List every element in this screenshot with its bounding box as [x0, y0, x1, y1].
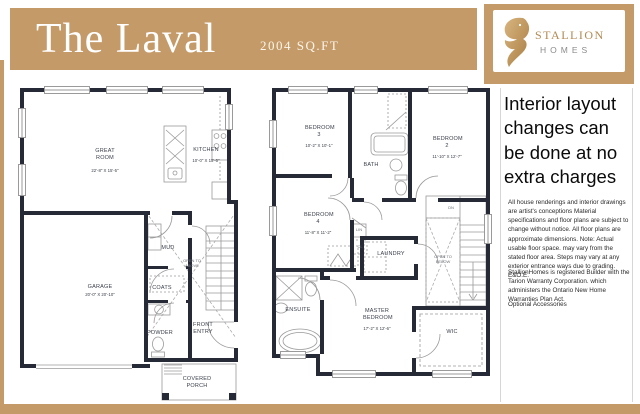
wall: [360, 236, 364, 280]
wall: [188, 211, 192, 225]
window: [432, 370, 472, 378]
room-dims-bedroom2: 11'-10" X 12'-7": [407, 154, 487, 159]
wall: [408, 88, 412, 202]
room-label-front-entry: FRONT ENTRY: [190, 322, 216, 335]
sqft-label: 2004 SQ.FT: [260, 38, 339, 54]
header-bar: The Laval 2004 SQ.FT: [10, 8, 477, 70]
powder-toilet: [153, 337, 164, 351]
room-label-ensuite: ENSUITE: [280, 307, 316, 314]
room-label-bath: BATH: [359, 162, 383, 169]
room-label-powder: POWDER: [142, 330, 178, 337]
wall: [412, 306, 490, 310]
bath-toilet: [396, 181, 407, 195]
room-dims-garage: 20'-0" X 20'-10": [60, 292, 140, 297]
room-label-mud: MUD: [156, 245, 180, 252]
room-dims-kitchen: 10'-0" X 15'-5": [166, 158, 246, 163]
wall: [272, 174, 332, 178]
wall: [320, 300, 324, 354]
wall: [144, 300, 168, 303]
window: [354, 86, 378, 94]
flyer-page: The Laval 2004 SQ.FT STALLION HOMES Inte…: [0, 0, 640, 414]
room-label-bedroom3: BEDROOM 3: [305, 125, 333, 138]
wall: [316, 354, 320, 376]
wall: [412, 358, 416, 372]
window: [288, 86, 328, 94]
window: [269, 120, 277, 148]
room-dims-bedroom3: 10'-2" X 10'-1": [279, 143, 359, 148]
floor1-plan: GREAT ROOM 22'-8" X 15'-5" KITCHEN 10'-0…: [16, 86, 244, 402]
room-label-coats: COATS: [147, 285, 177, 292]
promo-text: Interior layout changes can be done at n…: [504, 92, 632, 190]
label-dn: DN: [443, 205, 459, 210]
window: [162, 86, 204, 94]
wall: [144, 266, 168, 269]
wall: [414, 264, 418, 276]
floor1-fixtures-svg: [16, 86, 244, 402]
island-sink: [168, 168, 182, 179]
frame-bottom: [0, 404, 640, 414]
stallion-horse-icon: [501, 16, 531, 68]
bath-door-arc: [364, 202, 382, 220]
wall: [186, 300, 192, 303]
wall: [132, 364, 150, 368]
room-label-great-room: GREAT ROOM: [90, 148, 120, 161]
window: [106, 86, 148, 94]
room-label-wic: WIC: [436, 329, 468, 336]
room-label-master-bedroom: MASTER BEDROOM: [363, 308, 391, 321]
room-label-cl: CL: [353, 244, 367, 249]
window: [332, 370, 376, 378]
window: [280, 351, 306, 359]
room-label-laundry: LAUNDRY: [371, 251, 411, 258]
bed3-door-arc: [330, 178, 348, 196]
column-divider-left: [500, 88, 501, 402]
wall: [360, 276, 418, 280]
wall: [350, 178, 354, 198]
wall: [360, 236, 418, 240]
wall: [414, 236, 418, 244]
wic-shelving: [420, 314, 482, 366]
room-dims-master-bedroom: 17'-2" X 12'-6": [337, 326, 417, 331]
garage-door: [36, 365, 132, 369]
stallion-homes-logo: STALLION HOMES: [493, 10, 625, 72]
wall: [20, 364, 36, 368]
wall: [348, 88, 352, 178]
room-label-garage: GARAGE: [85, 284, 115, 291]
brand-sub-name: HOMES: [540, 45, 591, 55]
wall: [148, 358, 238, 362]
room-label-bedroom2: BEDROOM 2: [433, 136, 461, 149]
room-label-covered-porch: COVERED PORCH: [179, 376, 215, 389]
master-door-arc: [330, 280, 356, 306]
room-label-lin: LIN: [351, 227, 367, 232]
window: [428, 86, 468, 94]
bed2-door-arc: [416, 176, 438, 198]
room-dims-bedroom4: 11'-8" X 11'-2": [278, 230, 358, 235]
kitchen-island: [164, 126, 186, 182]
window: [18, 108, 26, 138]
floor2-plan: BEDROOM 3 10'-2" X 10'-1" BEDROOM 2 11'-…: [268, 86, 494, 402]
wall: [272, 268, 356, 272]
bath-sink: [390, 159, 402, 171]
logo-panel: STALLION HOMES: [484, 4, 634, 84]
room-dims-great-room: 22'-8" X 15'-5": [65, 168, 145, 173]
frame-left: [0, 60, 4, 414]
page-title: The Laval: [36, 15, 216, 63]
window: [18, 164, 26, 196]
label-open-to-above: OPEN TO ABOVE: [176, 258, 208, 268]
wall: [20, 211, 150, 215]
wall: [412, 198, 416, 202]
label-open-to-below: OPEN TO BELOW: [427, 254, 459, 264]
brand-name: STALLION: [535, 28, 605, 43]
window: [44, 86, 90, 94]
window: [269, 206, 277, 236]
wall: [234, 204, 238, 322]
disclaimer-paragraph-3: Optional Accessories: [508, 300, 630, 309]
window: [484, 214, 492, 244]
window: [225, 104, 233, 130]
stairs-down: [426, 196, 486, 306]
room-label-bedroom4: BEDROOM 4: [304, 212, 332, 225]
ensuite-toilet: [306, 282, 317, 296]
wall: [320, 276, 330, 280]
wall: [382, 198, 408, 202]
wall: [352, 198, 364, 202]
room-label-kitchen: KITCHEN: [191, 147, 221, 154]
wall: [438, 198, 490, 202]
column-divider-right: [632, 88, 633, 402]
